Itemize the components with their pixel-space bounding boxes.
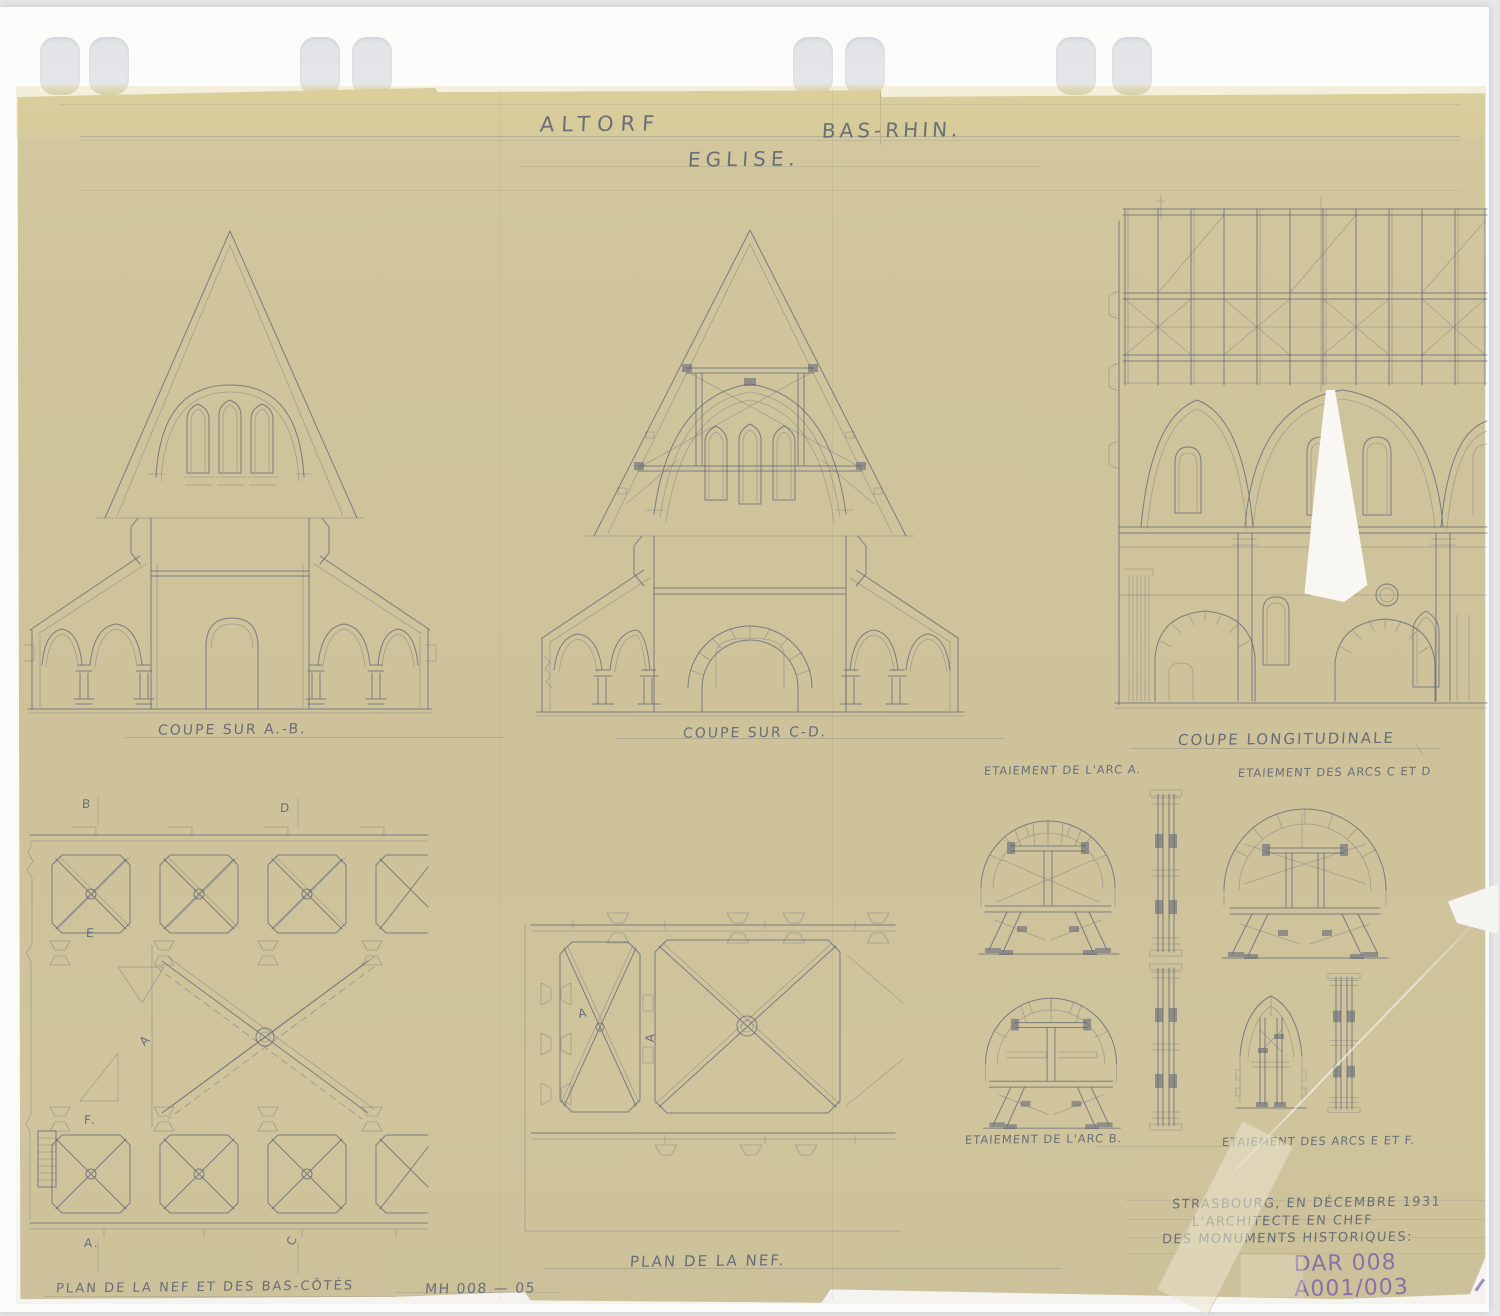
caption-plan-nef: PLAN DE LA NEF. <box>629 1251 785 1271</box>
punch-hole <box>1112 37 1152 95</box>
caption-plan-nef-bas-cotes: PLAN DE LA NEF ET DES BAS-CÔTÉS <box>55 1278 354 1296</box>
plan-nef-bas-cotes-drawing <box>22 795 432 1275</box>
plan-marker: D <box>280 801 292 815</box>
title-building: EGLISE. <box>687 146 800 171</box>
etaiement-arc-b-drawing <box>976 964 1128 1136</box>
archive-reference-stamp: DAR 008 A001/003 <box>1293 1248 1500 1302</box>
etaiement-arcs-ef-drawing <box>1232 982 1310 1120</box>
mh-reference: MH 008 — 05 <box>424 1280 536 1297</box>
fold-seam <box>500 90 501 1300</box>
caption-etaiement-arc-b: ETAIEMENT DE L'ARC B. <box>965 1131 1123 1147</box>
caption-etaiement-arc-a: ETAIEMENT DE L'ARC A. <box>984 762 1142 778</box>
plan-nef-drawing <box>515 895 905 1255</box>
coupe-cd-drawing <box>530 218 970 718</box>
coupe-longitudinale-drawing <box>1095 195 1490 715</box>
punch-hole <box>352 37 392 95</box>
punch-hole <box>793 37 833 95</box>
plan-marker: E <box>86 926 96 940</box>
punch-hole <box>89 37 129 95</box>
shoring-tower-side-view <box>1146 788 1184 960</box>
punch-hole <box>845 37 885 95</box>
scanned-drawing-sheet: ALTORF BAS-RHIN. EGLISE. <box>0 0 1500 1316</box>
ruled-line <box>80 190 1460 191</box>
plan-marker: A. <box>84 1236 101 1250</box>
caption-etaiement-arcs-cd: ETAIEMENT DES ARCS C ET D <box>1238 764 1432 780</box>
ruled-line <box>545 1268 1060 1269</box>
caption-coupe-ab: COUPE SUR A.-B. <box>157 721 307 739</box>
caption-coupe-longitudinale: COUPE LONGITUDINALE <box>1177 729 1395 749</box>
ruled-line <box>45 1296 395 1297</box>
ruled-line <box>80 140 1460 141</box>
caption-coupe-cd: COUPE SUR C-D. <box>682 724 827 742</box>
tape-patch <box>1240 1255 1304 1297</box>
title-place: ALTORF <box>539 111 662 136</box>
etaiement-arcs-cd-drawing <box>1216 784 1394 962</box>
ruled-line <box>80 136 1460 137</box>
title-department: BAS-RHIN. <box>821 117 962 142</box>
ruled-line <box>60 104 1460 105</box>
plan-marker: A <box>643 1031 658 1042</box>
etaiement-arc-a-drawing <box>973 786 1125 962</box>
coupe-ab-drawing <box>20 215 440 715</box>
punch-hole <box>40 37 80 95</box>
shoring-tower-side-view <box>1146 962 1184 1134</box>
plan-marker: F. <box>84 1113 98 1127</box>
punch-hole <box>300 37 340 95</box>
plan-marker: B <box>82 797 93 811</box>
punch-hole <box>1056 37 1096 95</box>
